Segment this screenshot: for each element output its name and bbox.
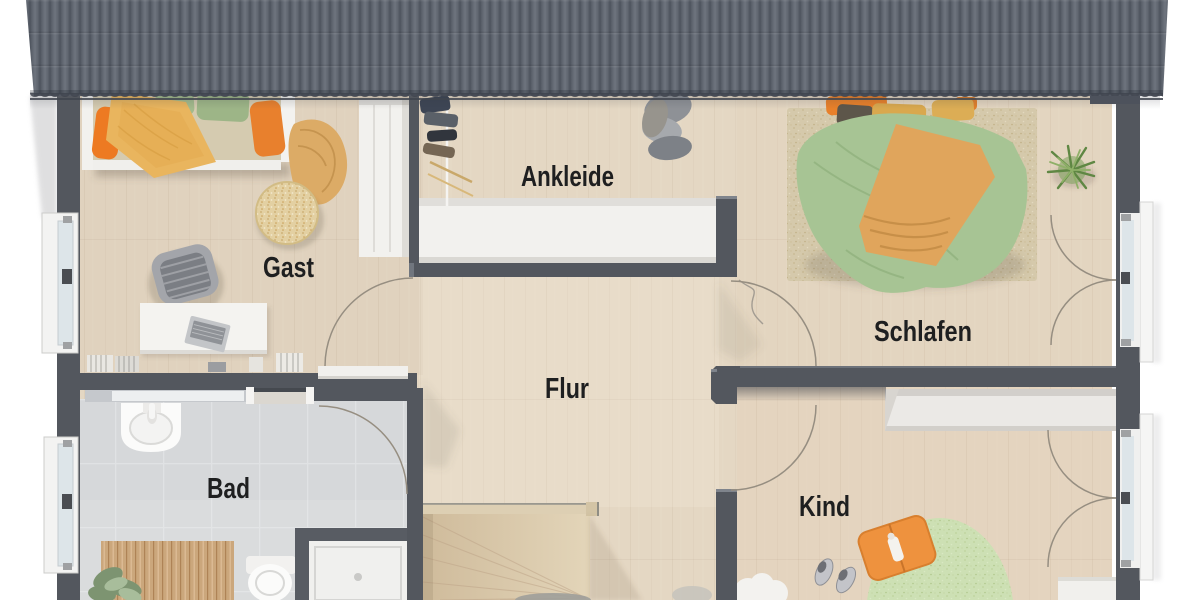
svg-text:Kind: Kind xyxy=(799,491,850,523)
svg-text:Schlafen: Schlafen xyxy=(874,316,972,348)
svg-text:Bad: Bad xyxy=(207,473,250,505)
svg-text:Flur: Flur xyxy=(545,373,589,405)
svg-text:Ankleide: Ankleide xyxy=(521,161,614,193)
svg-text:Gast: Gast xyxy=(263,252,314,284)
